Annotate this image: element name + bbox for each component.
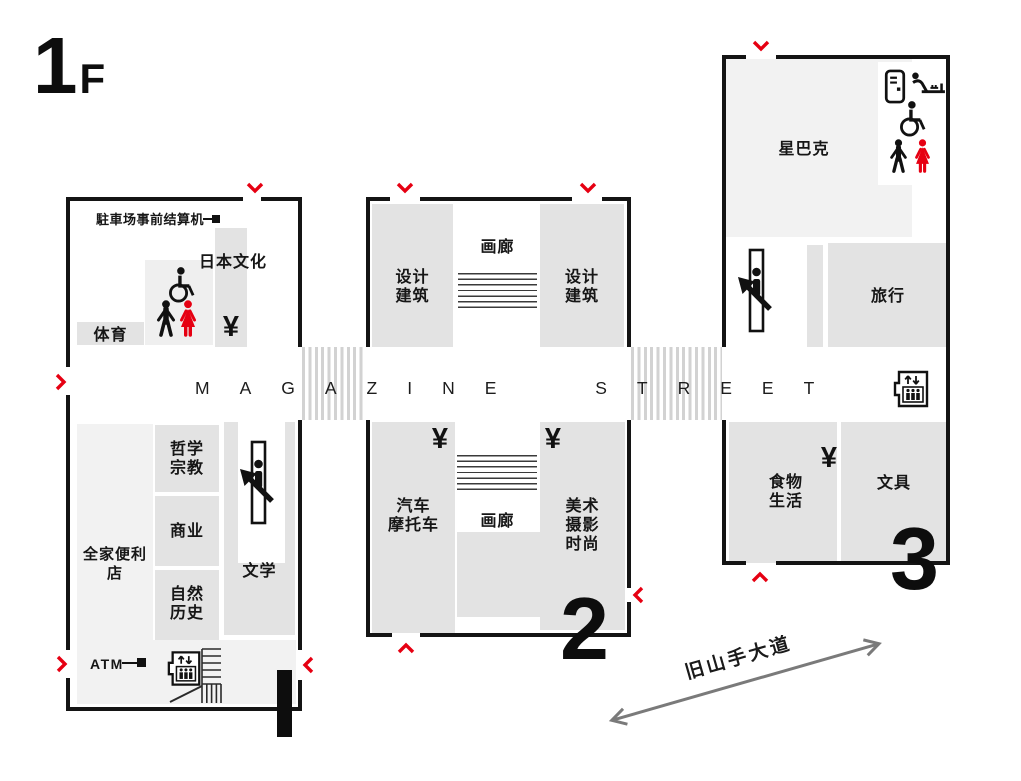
cash-register-yen-b2-right: ¥ [538, 424, 568, 454]
elevator-icon-b1 [166, 650, 204, 692]
entrance-chevron-b2-bottom [395, 637, 417, 659]
floor-number: 1 [33, 26, 78, 106]
entrance-chevron-b1-left-bottom [51, 653, 73, 675]
cash-register-yen-b2-left: ¥ [425, 424, 455, 454]
building-3-number: 3 [890, 515, 939, 603]
stairs-strip-lower [457, 455, 537, 490]
zone-label-cars-motorcycles: 汽车 摩托车 [372, 497, 455, 535]
entrance-chevron-b3-top [750, 35, 772, 57]
magazine-street-label: MAGAZINE STREET [195, 378, 844, 399]
building-1-number: 1 [277, 670, 292, 737]
escalator-icon-b3 [734, 248, 776, 339]
floor-suffix: F [80, 58, 106, 100]
floor-label: 1 F [33, 26, 105, 106]
entrance-chevron-b1-right-bottom [297, 654, 319, 676]
men-restroom-icon-b1 [155, 300, 177, 343]
escalator-icon-b1 [236, 440, 278, 531]
zone-label-starbucks: 星巴克 [764, 140, 844, 159]
zone-label-design-architecture-left: 设计 建筑 [372, 268, 453, 306]
zone-label-literature: 文学 [224, 562, 295, 581]
women-restroom-icon-b3 [912, 139, 933, 179]
zone-b3-small-strip [807, 245, 823, 347]
zone-label-business: 商业 [155, 522, 219, 541]
floor-map-1f: 1 F [0, 0, 1021, 781]
parking-pay-machine-icon [212, 215, 220, 223]
zone-label-familymart: 全家便利店 [76, 545, 154, 583]
building-2-number: 2 [560, 585, 609, 673]
zone-label-japanese-culture: 日本文化 [197, 253, 269, 272]
entrance-chevron-b3-bottom [749, 566, 771, 588]
zone-label-philosophy-religion: 哲学 宗教 [155, 440, 219, 478]
atm-label: ATM [90, 655, 122, 674]
zone-label-sports: 体育 [77, 326, 144, 345]
elevator-icon-b3 [892, 370, 932, 413]
wheelchair-icon-b3 [894, 100, 926, 143]
zone-label-food-life: 食物 生活 [746, 473, 826, 511]
stairs-strip-upper [458, 273, 537, 312]
zone-label-nature-history: 自然 历史 [155, 585, 219, 623]
zone-familymart [77, 424, 153, 640]
atm-connector [122, 662, 137, 664]
entrance-chevron-b1-top [244, 177, 266, 199]
zone-label-gallery-upper: 画廊 [458, 238, 537, 257]
zone-label-design-architecture-right: 设计 建筑 [540, 268, 624, 306]
zone-label-travel: 旅行 [848, 287, 928, 306]
entrance-chevron-b2-top-right [577, 177, 599, 199]
zone-label-gallery-lower: 画廊 [458, 512, 537, 531]
men-restroom-icon-b3 [888, 139, 909, 179]
baby-changing-icon-b3 [910, 69, 947, 103]
parking-pay-machine-label: 駐車场事前结算机 [96, 212, 202, 227]
atm-machine-icon [137, 658, 146, 667]
entrance-chevron-b1-left-street [50, 371, 72, 393]
zone-gallery-lower-block [457, 532, 540, 617]
women-restroom-icon-b1 [177, 300, 199, 343]
zone-label-stationery: 文具 [854, 474, 934, 493]
entrance-chevron-b2-top-left [394, 177, 416, 199]
zone-label-art-photo-fashion: 美术 摄影 时尚 [540, 497, 625, 554]
entrance-chevron-b2-right [627, 584, 649, 606]
cash-register-yen-b3: ¥ [814, 443, 844, 473]
road-arrow: 旧山手大道 [603, 632, 887, 731]
cash-register-yen-b1: ¥ [216, 312, 246, 342]
